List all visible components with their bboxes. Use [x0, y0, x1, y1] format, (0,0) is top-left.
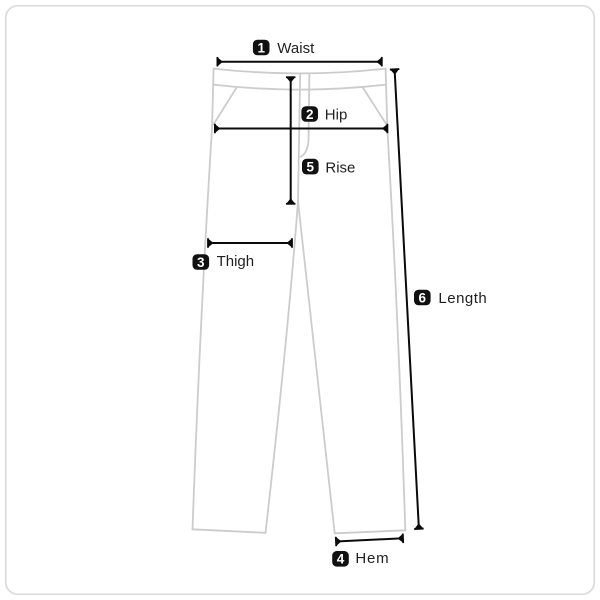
svg-text:1: 1	[257, 40, 265, 55]
svg-text:Hem: Hem	[355, 550, 389, 567]
svg-text:4: 4	[337, 552, 345, 567]
svg-text:6: 6	[419, 290, 427, 305]
svg-text:Thigh: Thigh	[217, 253, 255, 270]
svg-text:Rise: Rise	[325, 159, 355, 176]
svg-text:5: 5	[307, 160, 315, 175]
svg-text:3: 3	[197, 255, 205, 270]
svg-text:Hip: Hip	[325, 106, 348, 123]
svg-text:Length: Length	[438, 290, 487, 307]
svg-text:2: 2	[306, 107, 314, 122]
svg-text:Waist: Waist	[277, 40, 315, 57]
